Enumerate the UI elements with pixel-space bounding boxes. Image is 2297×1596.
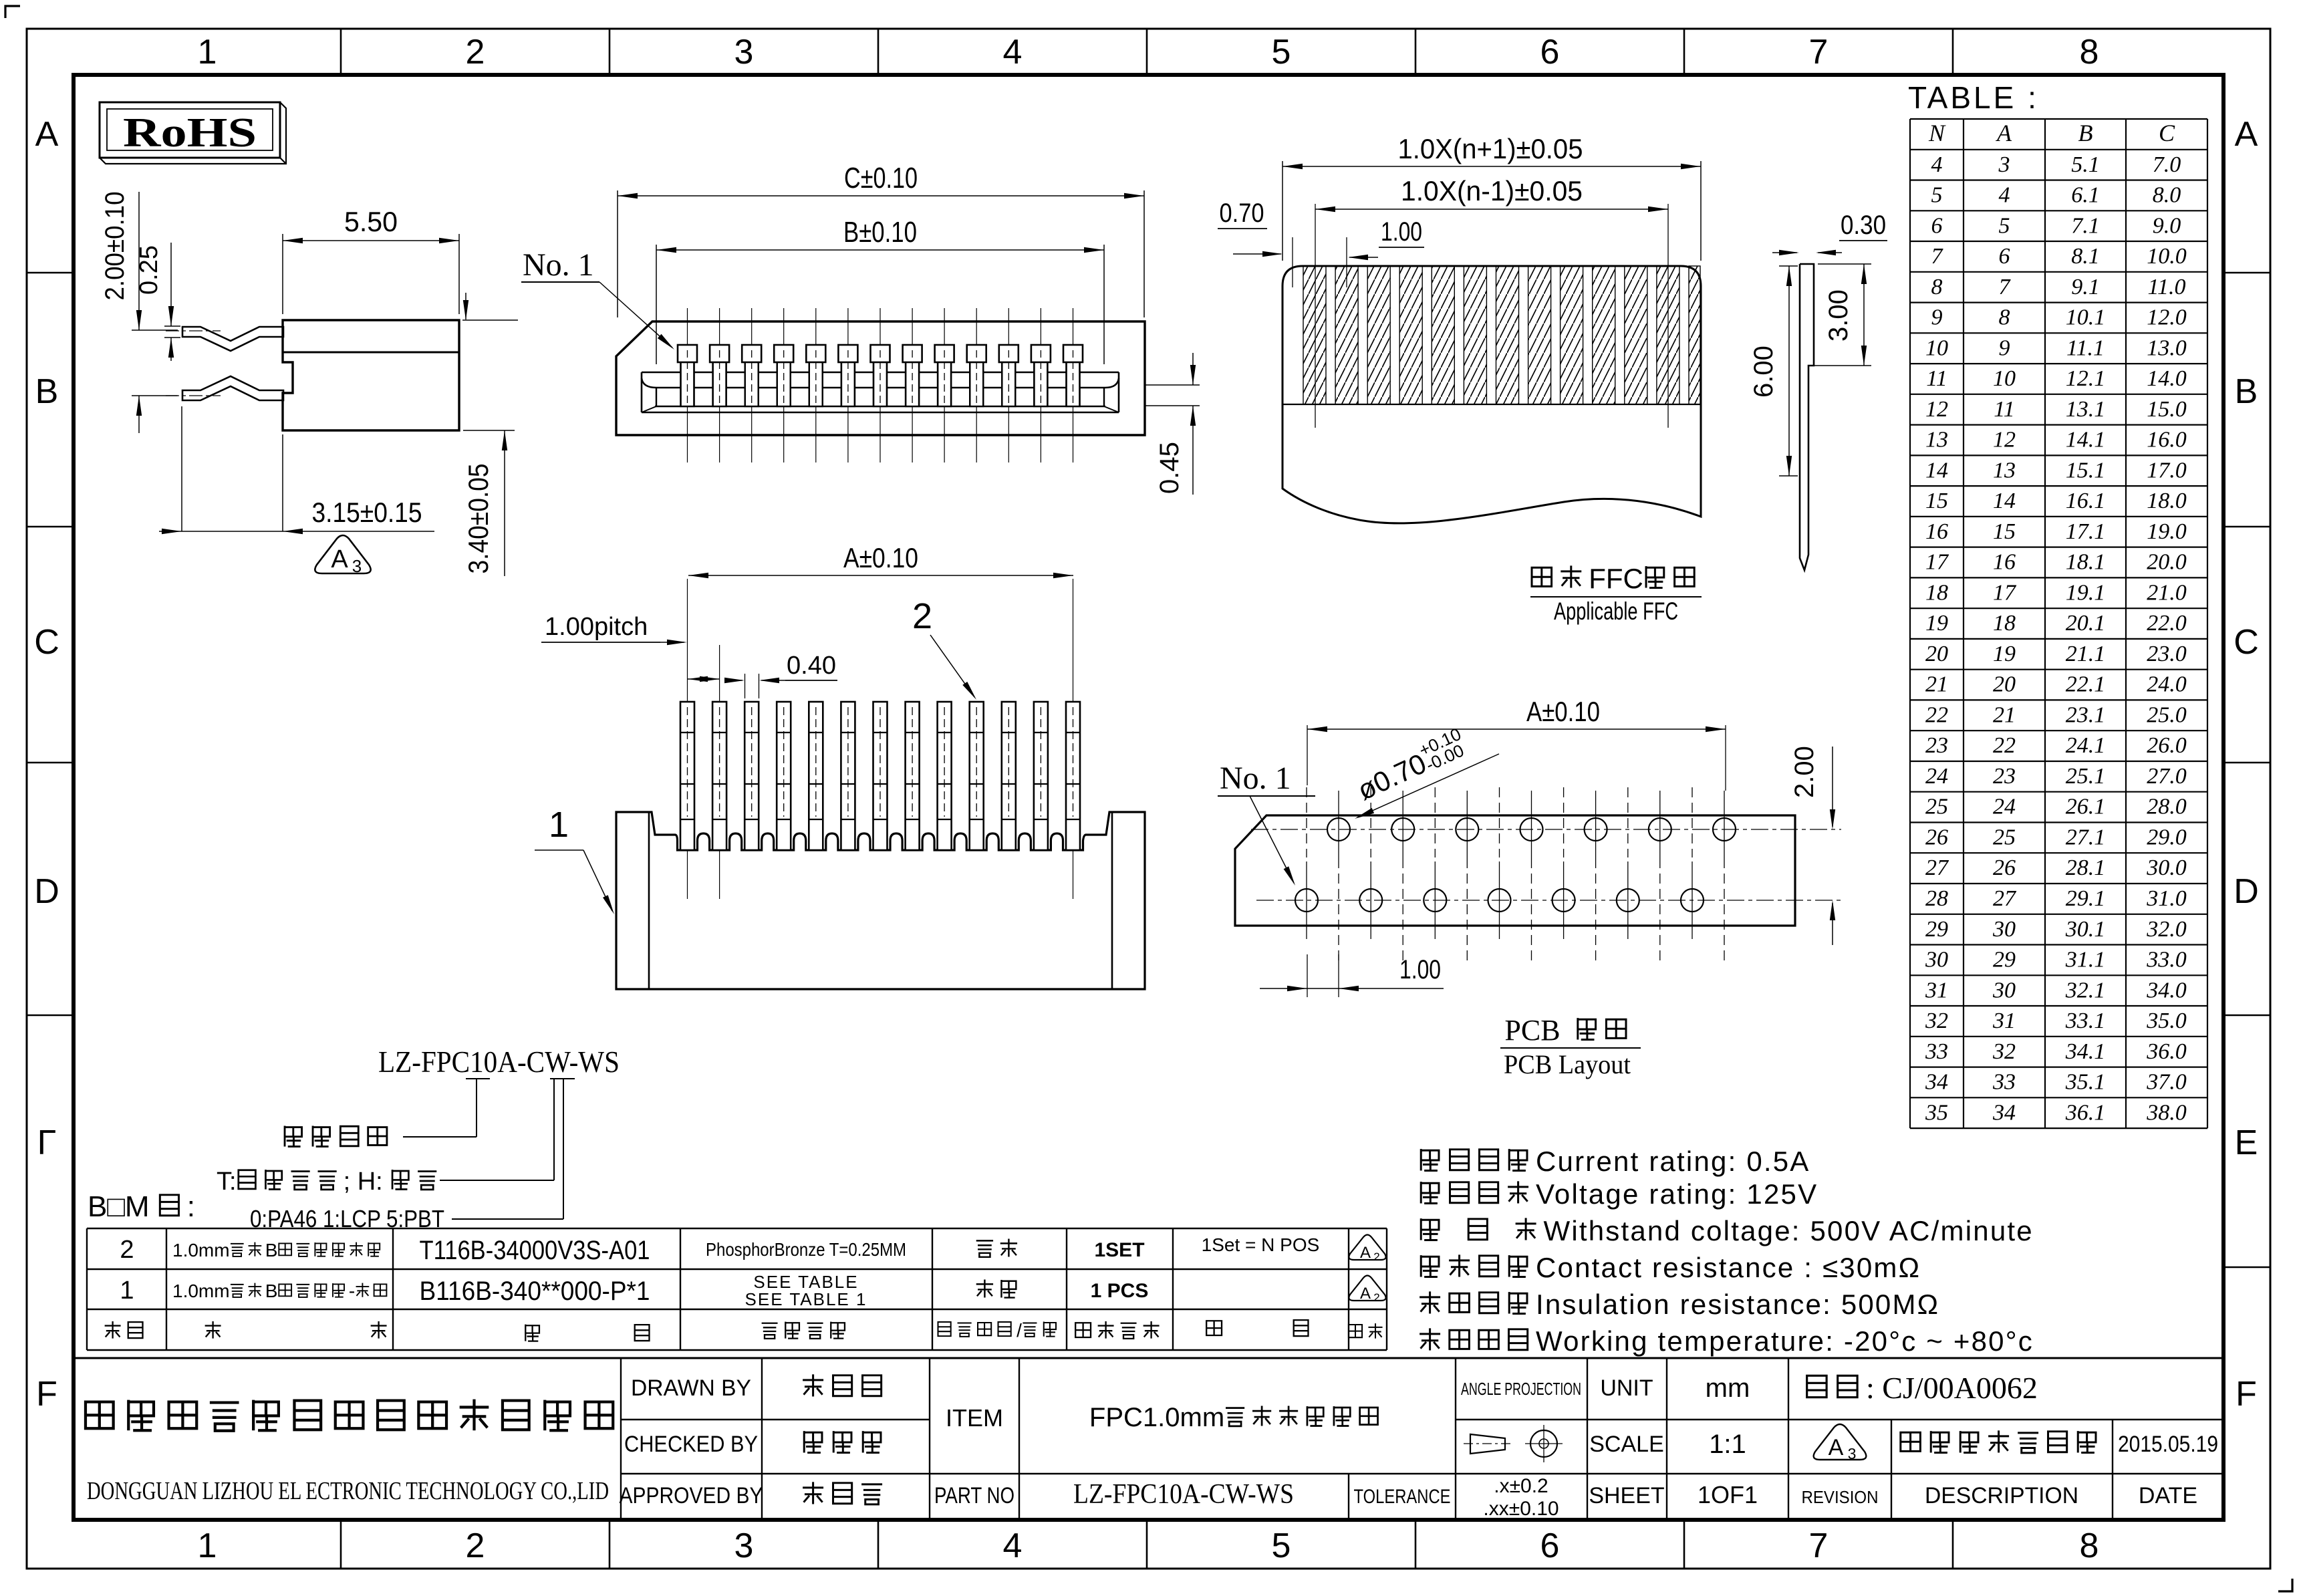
svg-text:Contact resistance : ≤30mΩ: Contact resistance : ≤30mΩ [1536, 1252, 1921, 1283]
svg-text::: : [187, 1190, 195, 1223]
svg-text:No. 1: No. 1 [1220, 761, 1291, 796]
svg-text:REVISION: REVISION [1802, 1487, 1879, 1507]
svg-text:16: 16 [1925, 519, 1948, 544]
svg-text:1: 1 [198, 1526, 217, 1565]
svg-text:34: 34 [1992, 1100, 2016, 1125]
svg-text:LZ-FPC10A-CW-WS: LZ-FPC10A-CW-WS [1073, 1479, 1294, 1510]
svg-text:14.1: 14.1 [2066, 428, 2106, 452]
svg-text:25: 25 [1925, 795, 1948, 819]
svg-text:36.1: 36.1 [2065, 1100, 2106, 1125]
svg-text:29: 29 [1925, 917, 1948, 942]
svg-text:24.1: 24.1 [2066, 733, 2106, 758]
svg-text:1: 1 [198, 33, 217, 72]
svg-text:25.1: 25.1 [2066, 764, 2106, 789]
svg-text:C: C [34, 623, 59, 662]
svg-text:5.50: 5.50 [344, 206, 398, 237]
svg-text:12: 12 [1925, 397, 1948, 422]
svg-text:2: 2 [1373, 1250, 1379, 1263]
svg-text:7: 7 [1931, 244, 1944, 269]
svg-text:UNIT: UNIT [1600, 1375, 1653, 1401]
svg-text:15: 15 [1925, 489, 1948, 513]
svg-text:27.0: 27.0 [2147, 764, 2187, 789]
svg-text:7: 7 [1999, 275, 2012, 299]
svg-text:No. 1: No. 1 [523, 247, 594, 283]
svg-text:32: 32 [1992, 1039, 2016, 1064]
svg-text:21.0: 21.0 [2147, 580, 2187, 605]
svg-text:7: 7 [1809, 33, 1829, 72]
svg-text:28.0: 28.0 [2147, 795, 2187, 819]
svg-text:34: 34 [1925, 1070, 1948, 1095]
svg-text:B: B [265, 1240, 278, 1260]
svg-text:D: D [2234, 872, 2259, 911]
svg-text:10: 10 [1993, 366, 2016, 391]
svg-text:7.1: 7.1 [2071, 213, 2100, 238]
svg-text:D: D [34, 872, 59, 911]
svg-text:C±0.10: C±0.10 [844, 162, 918, 194]
svg-text:SHEET: SHEET [1589, 1483, 1664, 1508]
svg-text:0.45: 0.45 [1155, 442, 1184, 494]
svg-text:A: A [1996, 120, 2012, 146]
svg-text:PART NO: PART NO [934, 1483, 1015, 1508]
svg-text:11.0: 11.0 [2148, 275, 2186, 299]
svg-text:2: 2 [466, 1526, 485, 1565]
svg-text:21: 21 [1925, 672, 1948, 697]
svg-text:B□M: B□M [88, 1190, 150, 1223]
svg-text:35: 35 [1925, 1100, 1948, 1125]
svg-text:26.0: 26.0 [2147, 733, 2187, 758]
svg-text:10.0: 10.0 [2147, 244, 2187, 269]
svg-text:1.0X(n-1)±0.05: 1.0X(n-1)±0.05 [1401, 175, 1583, 207]
svg-text:3: 3 [734, 1526, 754, 1565]
svg-text:17: 17 [1925, 550, 1949, 575]
svg-text:13: 13 [1993, 458, 2016, 483]
svg-text:.xx±0.10: .xx±0.10 [1483, 1498, 1559, 1520]
svg-text:31.1: 31.1 [2065, 948, 2106, 972]
svg-text:5.1: 5.1 [2071, 152, 2100, 177]
svg-text:8: 8 [1999, 305, 2010, 330]
svg-text:7.0: 7.0 [2153, 152, 2181, 177]
svg-text:: CJ/00A0062: : CJ/00A0062 [1866, 1371, 2038, 1405]
svg-text:0.30: 0.30 [1841, 211, 1886, 240]
svg-text:31: 31 [1925, 978, 1948, 1003]
svg-text:16.1: 16.1 [2066, 489, 2106, 513]
svg-text:1.0X(n+1)±0.05: 1.0X(n+1)±0.05 [1398, 133, 1583, 164]
svg-text:21.1: 21.1 [2066, 642, 2106, 666]
svg-text:13.1: 13.1 [2066, 397, 2106, 422]
svg-text:APPROVED BY: APPROVED BY [620, 1483, 763, 1508]
svg-text:16: 16 [1993, 550, 2016, 575]
svg-text:33: 33 [1925, 1039, 1948, 1064]
svg-text:T:: T: [217, 1168, 237, 1196]
svg-text:1.00: 1.00 [1399, 955, 1441, 984]
svg-text:1 PCS: 1 PCS [1091, 1280, 1149, 1302]
svg-text:3.40±0.05: 3.40±0.05 [462, 464, 494, 574]
svg-text:1OF1: 1OF1 [1698, 1481, 1758, 1508]
svg-text:Γ: Γ [37, 1123, 57, 1162]
svg-text:1: 1 [120, 1277, 134, 1305]
svg-text:30.0: 30.0 [2146, 855, 2187, 880]
svg-text:1SET: 1SET [1094, 1239, 1144, 1261]
svg-text:2: 2 [466, 33, 485, 72]
svg-text:17: 17 [1993, 580, 2017, 605]
svg-text:SCALE: SCALE [1589, 1432, 1664, 1457]
svg-text:30: 30 [1992, 917, 2016, 942]
svg-text:F: F [36, 1375, 57, 1414]
svg-text:1.00pitch: 1.00pitch [545, 613, 648, 641]
svg-text:32.0: 32.0 [2146, 917, 2187, 942]
svg-text:8: 8 [2080, 1526, 2099, 1565]
svg-text:17.0: 17.0 [2147, 458, 2187, 483]
svg-text:DONGGUAN LIZHOU EL ECTRONIC TE: DONGGUAN LIZHOU EL ECTRONIC TECHNOLOGY C… [87, 1477, 609, 1505]
svg-text:33: 33 [1992, 1070, 2016, 1095]
svg-text:31.0: 31.0 [2146, 886, 2187, 911]
svg-text:16.0: 16.0 [2147, 428, 2187, 452]
svg-text:23: 23 [1993, 764, 2016, 789]
svg-text:E: E [2235, 1123, 2258, 1162]
svg-text:8: 8 [1931, 275, 1943, 299]
svg-text:18.1: 18.1 [2066, 550, 2106, 575]
svg-text:6: 6 [1540, 33, 1560, 72]
svg-text:A: A [2235, 115, 2258, 154]
svg-text:Working temperature: -20°c ~: Working temperature: -20°c ~ +80°c [1536, 1325, 2034, 1357]
svg-text:14.0: 14.0 [2147, 366, 2187, 391]
svg-text:3: 3 [734, 33, 754, 72]
svg-text:N: N [1928, 120, 1946, 146]
svg-text:20.1: 20.1 [2066, 611, 2106, 636]
svg-text:22.1: 22.1 [2066, 672, 2106, 697]
svg-text:4: 4 [1003, 33, 1023, 72]
svg-text:24: 24 [1925, 764, 1948, 789]
svg-text:36.0: 36.0 [2146, 1039, 2187, 1064]
svg-text:A: A [1829, 1435, 1844, 1460]
svg-text:9: 9 [1931, 305, 1943, 330]
svg-text:DRAWN BY: DRAWN BY [631, 1375, 751, 1401]
svg-text:3: 3 [1998, 152, 2010, 177]
svg-text:A: A [35, 115, 59, 154]
svg-text:22: 22 [1925, 702, 1948, 727]
svg-text:28.1: 28.1 [2066, 855, 2106, 880]
svg-text:19: 19 [1993, 642, 2016, 666]
svg-text:20: 20 [1993, 672, 2016, 697]
svg-text:6: 6 [1931, 213, 1943, 238]
svg-text:24: 24 [1993, 795, 2016, 819]
svg-text:6.1: 6.1 [2071, 183, 2100, 208]
svg-text:25: 25 [1993, 825, 2016, 850]
svg-text:11: 11 [1994, 397, 2014, 422]
svg-text:4: 4 [1003, 1526, 1023, 1565]
svg-text:38.0: 38.0 [2146, 1100, 2187, 1125]
svg-text:12: 12 [1993, 428, 2016, 452]
svg-text:25.0: 25.0 [2147, 702, 2187, 727]
svg-text:0.40: 0.40 [787, 652, 836, 680]
svg-text:; H:: ; H: [344, 1168, 383, 1196]
svg-text:5: 5 [1999, 213, 2010, 238]
svg-text:7: 7 [1809, 1526, 1829, 1565]
svg-text:4: 4 [1931, 152, 1943, 177]
svg-text:A: A [1360, 1244, 1371, 1262]
svg-text:20: 20 [1925, 642, 1948, 666]
svg-text:26: 26 [1993, 855, 2016, 880]
svg-text:3: 3 [1848, 1445, 1857, 1462]
svg-text:B: B [265, 1281, 278, 1301]
svg-text:B±0.10: B±0.10 [843, 216, 917, 249]
svg-text:5: 5 [1272, 1526, 1291, 1565]
svg-text:PCB Layout: PCB Layout [1504, 1049, 1631, 1079]
svg-text:DATE: DATE [2139, 1483, 2197, 1508]
svg-text:29: 29 [1993, 948, 2016, 972]
svg-text:DESCRIPTION: DESCRIPTION [1925, 1483, 2078, 1508]
svg-text:18: 18 [1925, 580, 1948, 605]
svg-text:15.0: 15.0 [2147, 397, 2187, 422]
svg-text:3.00: 3.00 [1824, 289, 1853, 342]
svg-text:21: 21 [1993, 702, 2016, 727]
svg-text:A±0.10: A±0.10 [1526, 696, 1600, 727]
svg-text:20.0: 20.0 [2147, 550, 2187, 575]
svg-text:5: 5 [1931, 183, 1943, 208]
svg-text:FFC: FFC [1589, 563, 1643, 594]
svg-text:27: 27 [1993, 886, 2017, 911]
svg-text:1:1: 1:1 [1709, 1430, 1746, 1459]
svg-text:2.00: 2.00 [1790, 746, 1819, 798]
svg-text:PhosphorBronze T=0.25MM: PhosphorBronze T=0.25MM [706, 1239, 906, 1260]
svg-text:Insulation resistance: 500MΩ: Insulation resistance: 500MΩ [1536, 1289, 1939, 1320]
svg-text:13.0: 13.0 [2147, 336, 2187, 360]
svg-text:-: - [349, 1281, 355, 1301]
svg-text:2: 2 [912, 596, 932, 636]
svg-text:30.1: 30.1 [2065, 917, 2106, 942]
svg-text:23.1: 23.1 [2066, 702, 2106, 727]
svg-text:24.0: 24.0 [2147, 672, 2187, 697]
svg-text:2: 2 [120, 1236, 134, 1264]
svg-text:B: B [2235, 372, 2258, 411]
svg-text:30: 30 [1925, 948, 1948, 972]
svg-text:1.0mm: 1.0mm [172, 1281, 230, 1301]
svg-text:.x±0.2: .x±0.2 [1494, 1475, 1548, 1497]
svg-text:30: 30 [1992, 978, 2016, 1003]
svg-text:15: 15 [1993, 519, 2016, 544]
svg-text:9.0: 9.0 [2153, 213, 2181, 238]
svg-text:12.0: 12.0 [2147, 305, 2187, 330]
svg-text:0.70: 0.70 [1220, 198, 1264, 228]
svg-text:17.1: 17.1 [2066, 519, 2106, 544]
svg-text:32.1: 32.1 [2065, 978, 2106, 1003]
svg-text:34.0: 34.0 [2146, 978, 2187, 1003]
svg-text:2.00±0.10: 2.00±0.10 [100, 192, 130, 301]
svg-text:35.0: 35.0 [2146, 1009, 2187, 1033]
svg-text:34.1: 34.1 [2065, 1039, 2106, 1064]
svg-text:12.1: 12.1 [2066, 366, 2106, 391]
svg-text:Applicable FFC: Applicable FFC [1554, 597, 1678, 625]
svg-text:A: A [331, 545, 348, 573]
svg-text:11.1: 11.1 [2066, 336, 2105, 360]
svg-text:PCB: PCB [1504, 1014, 1560, 1047]
svg-text:8.1: 8.1 [2071, 244, 2100, 269]
svg-text:B: B [35, 372, 59, 411]
svg-text:A±0.10: A±0.10 [843, 542, 918, 573]
svg-text:19: 19 [1925, 611, 1948, 636]
svg-text:F: F [2236, 1375, 2257, 1414]
svg-text:Withstand coltage: 500V AC/mi: Withstand coltage: 500V AC/minute [1544, 1215, 2034, 1246]
svg-text:22.0: 22.0 [2147, 611, 2187, 636]
svg-text:3.15±0.15: 3.15±0.15 [312, 497, 422, 528]
svg-text:LZ-FPC10A-CW-WS: LZ-FPC10A-CW-WS [378, 1045, 620, 1079]
svg-text:FPC1.0mm: FPC1.0mm [1089, 1403, 1224, 1432]
svg-text:3: 3 [352, 556, 362, 576]
svg-text:26: 26 [1925, 825, 1948, 850]
svg-text:RoHS: RoHS [123, 110, 257, 156]
svg-text:B: B [2078, 120, 2093, 146]
svg-text:31: 31 [1992, 1009, 2016, 1033]
svg-text:Voltage rating: 125V: Voltage rating: 125V [1536, 1178, 1818, 1210]
svg-text:C: C [2159, 120, 2175, 146]
svg-text:ANGLE PROJECTION: ANGLE PROJECTION [1461, 1379, 1581, 1399]
svg-text:14: 14 [1993, 489, 2016, 513]
svg-text:28: 28 [1925, 886, 1948, 911]
svg-text:15.1: 15.1 [2066, 458, 2106, 483]
svg-text:9.1: 9.1 [2071, 275, 2100, 299]
svg-text:/: / [1017, 1320, 1022, 1341]
svg-text:11: 11 [1926, 366, 1947, 391]
svg-text:TOLERANCE: TOLERANCE [1354, 1486, 1451, 1508]
svg-text:19.1: 19.1 [2066, 580, 2106, 605]
svg-text:18.0: 18.0 [2147, 489, 2187, 513]
svg-text:14: 14 [1925, 458, 1948, 483]
svg-text:5: 5 [1272, 33, 1291, 72]
svg-text:32: 32 [1925, 1009, 1948, 1033]
svg-text:A: A [1360, 1285, 1371, 1303]
svg-text:2: 2 [1373, 1291, 1379, 1304]
svg-text:27: 27 [1925, 855, 1949, 880]
svg-text:37.0: 37.0 [2146, 1070, 2187, 1095]
svg-text:C: C [2234, 623, 2259, 662]
svg-text:Current rating: 0.5A: Current rating: 0.5A [1536, 1146, 1810, 1177]
svg-text:mm: mm [1706, 1373, 1750, 1403]
svg-text:33.1: 33.1 [2065, 1009, 2106, 1033]
svg-text:CHECKED BY: CHECKED BY [624, 1432, 758, 1457]
svg-text:27.1: 27.1 [2066, 825, 2106, 850]
svg-text:8: 8 [2080, 33, 2099, 72]
svg-text:1.0mm: 1.0mm [172, 1240, 230, 1260]
svg-text:22: 22 [1993, 733, 2016, 758]
svg-text:19.0: 19.0 [2147, 519, 2187, 544]
svg-text:ITEM: ITEM [946, 1404, 1003, 1432]
svg-text:1Set = N POS: 1Set = N POS [1202, 1234, 1320, 1255]
svg-text:9: 9 [1999, 336, 2010, 360]
svg-text:6: 6 [1999, 244, 2010, 269]
svg-text:6: 6 [1540, 1526, 1560, 1565]
svg-text:23.0: 23.0 [2147, 642, 2187, 666]
svg-text:T116B-34000V3S-A01: T116B-34000V3S-A01 [420, 1236, 650, 1265]
svg-text:10.1: 10.1 [2066, 305, 2106, 330]
svg-text:29.0: 29.0 [2147, 825, 2187, 850]
svg-text:SEE TABLE 1: SEE TABLE 1 [745, 1289, 867, 1309]
svg-text:4: 4 [1999, 183, 2010, 208]
svg-text:6.00: 6.00 [1749, 346, 1778, 398]
svg-text:8.0: 8.0 [2153, 183, 2181, 208]
svg-text:29.1: 29.1 [2066, 886, 2106, 911]
svg-text:1: 1 [549, 805, 569, 845]
svg-text:0.25: 0.25 [135, 245, 163, 295]
svg-text:35.1: 35.1 [2065, 1070, 2106, 1095]
svg-text:10: 10 [1925, 336, 1948, 360]
svg-text:TABLE :: TABLE : [1908, 80, 2039, 115]
svg-text:18: 18 [1993, 611, 2016, 636]
svg-text:26.1: 26.1 [2066, 795, 2106, 819]
svg-text:13: 13 [1925, 428, 1948, 452]
svg-text:23: 23 [1925, 733, 1948, 758]
svg-text:1.00: 1.00 [1381, 217, 1422, 247]
svg-text:B116B-340**000-P*1: B116B-340**000-P*1 [420, 1277, 650, 1306]
svg-text:2015.05.19: 2015.05.19 [2118, 1432, 2218, 1457]
svg-text:33.0: 33.0 [2146, 948, 2187, 972]
